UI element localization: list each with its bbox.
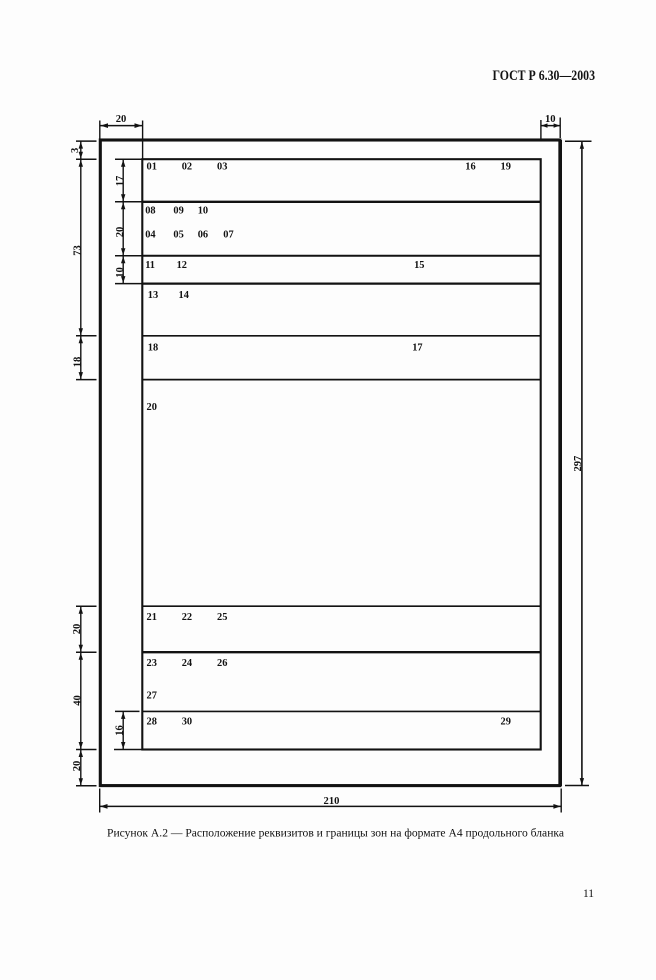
svg-text:20: 20	[72, 761, 83, 772]
svg-text:07: 07	[223, 230, 233, 241]
svg-text:73: 73	[73, 245, 84, 256]
svg-text:40: 40	[72, 695, 83, 706]
svg-text:ГОСТ Р 6.30—2003: ГОСТ Р 6.30—2003	[493, 68, 596, 84]
svg-text:29: 29	[501, 716, 511, 727]
svg-text:20: 20	[72, 624, 83, 635]
svg-text:23: 23	[147, 658, 157, 669]
svg-text:19: 19	[501, 161, 511, 172]
svg-text:02: 02	[182, 161, 192, 172]
svg-text:08: 08	[145, 206, 155, 217]
svg-text:Рисунок А.2 — Расположение рек: Рисунок А.2 — Расположение реквизитов и …	[107, 826, 565, 840]
svg-text:24: 24	[182, 658, 192, 669]
svg-text:27: 27	[147, 691, 157, 702]
svg-text:10: 10	[545, 114, 556, 125]
svg-text:14: 14	[179, 290, 189, 301]
svg-text:01: 01	[147, 161, 157, 172]
svg-text:210: 210	[324, 796, 340, 807]
svg-text:297: 297	[573, 455, 584, 472]
svg-text:20: 20	[115, 227, 126, 238]
svg-text:03: 03	[217, 161, 227, 172]
svg-text:05: 05	[173, 230, 183, 241]
svg-text:11: 11	[583, 888, 594, 900]
svg-text:13: 13	[148, 290, 158, 301]
svg-text:06: 06	[198, 230, 208, 241]
svg-text:10: 10	[198, 206, 208, 217]
svg-text:21: 21	[147, 612, 157, 623]
svg-text:25: 25	[217, 612, 227, 623]
svg-text:28: 28	[147, 716, 157, 727]
svg-text:20: 20	[147, 402, 157, 413]
svg-text:04: 04	[145, 230, 155, 241]
svg-text:11: 11	[145, 260, 155, 271]
svg-text:17: 17	[115, 175, 126, 186]
svg-text:15: 15	[414, 260, 424, 271]
svg-text:09: 09	[173, 206, 183, 217]
svg-text:26: 26	[217, 658, 227, 669]
svg-text:3: 3	[70, 148, 81, 153]
svg-text:18: 18	[148, 343, 158, 354]
svg-text:20: 20	[116, 114, 127, 125]
svg-text:22: 22	[182, 612, 192, 623]
svg-text:16: 16	[115, 725, 126, 736]
svg-text:17: 17	[412, 343, 422, 354]
svg-text:10: 10	[115, 267, 126, 278]
svg-text:12: 12	[177, 260, 187, 271]
svg-text:30: 30	[182, 716, 192, 727]
svg-text:16: 16	[465, 161, 475, 172]
svg-text:18: 18	[72, 357, 83, 368]
